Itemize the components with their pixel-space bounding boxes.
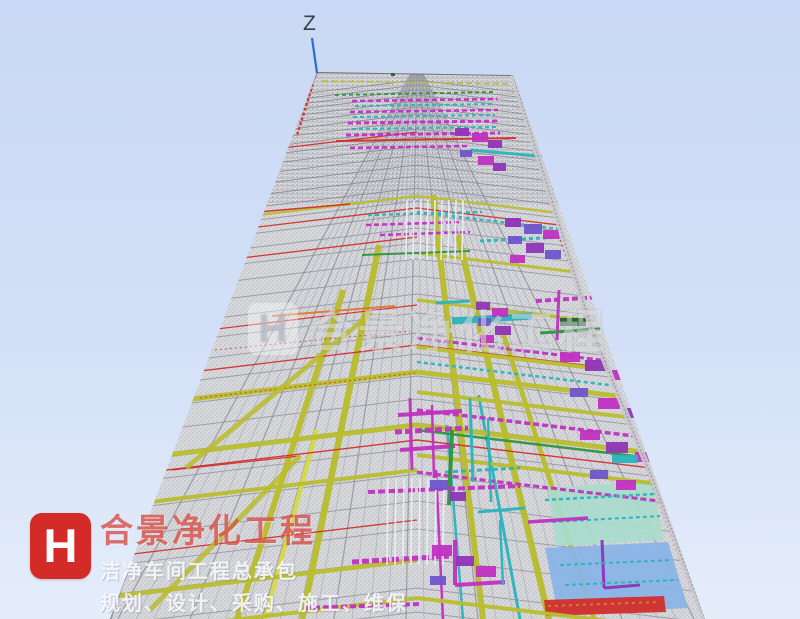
- company-text-block: 合景净化工程 洁净车间工程总承包 规划、设计、采购、施工、维保: [100, 504, 408, 616]
- company-logo-block: H 合景净化工程 洁净车间工程总承包 规划、设计、采购、施工、维保: [30, 504, 408, 616]
- company-tagline-1: 洁净车间工程总承包: [100, 555, 408, 584]
- company-name: 合景净化工程: [100, 504, 408, 552]
- company-logo-icon: H: [30, 513, 91, 579]
- z-axis-label: Z: [303, 12, 316, 35]
- z-axis-gizmo: Z: [303, 12, 317, 73]
- z-axis-line: [312, 38, 317, 73]
- company-tagline-2: 规划、设计、采购、施工、维保: [100, 587, 408, 616]
- viewport-stage: Z H 合景净化工程 H 合景净化工程 洁净车间工程总承包 规划、设计、采购、施…: [0, 0, 800, 619]
